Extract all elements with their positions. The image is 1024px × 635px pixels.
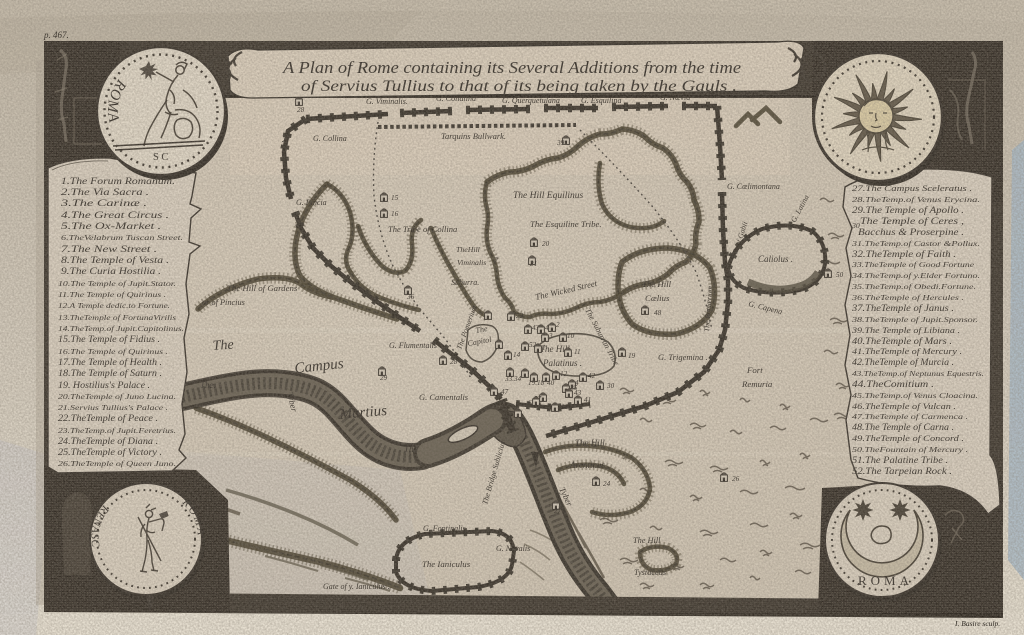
svg-text:I. Basire sculp.: I. Basire sculp. — [954, 619, 1000, 628]
